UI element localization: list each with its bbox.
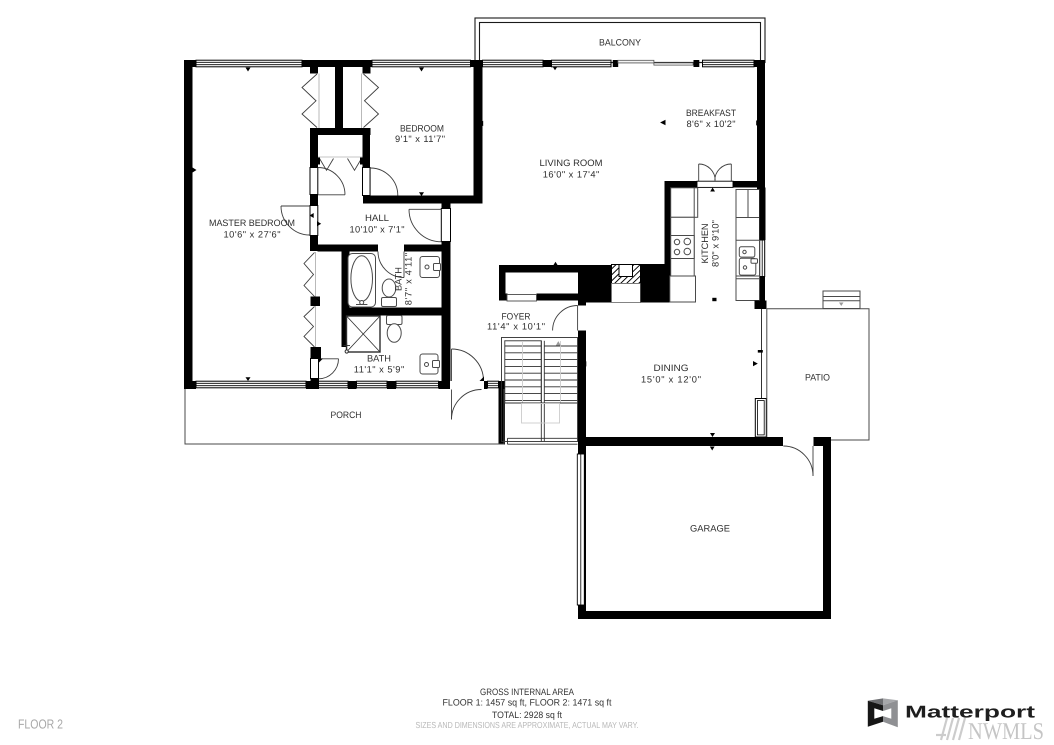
svg-text:BREAKFAST: BREAKFAST: [686, 108, 736, 118]
svg-text:8'0" x 9'10": 8'0" x 9'10": [711, 220, 721, 267]
svg-text:NWMLS: NWMLS: [968, 719, 1044, 745]
svg-text:9'1" x 11'7": 9'1" x 11'7": [395, 134, 445, 144]
svg-text:15'0" x 12'0": 15'0" x 12'0": [641, 375, 701, 385]
svg-text:BALCONY: BALCONY: [599, 38, 641, 48]
svg-text:MASTER BEDROOM: MASTER BEDROOM: [209, 218, 295, 228]
svg-text:TOTAL: 2928 sq ft: TOTAL: 2928 sq ft: [492, 710, 562, 720]
svg-text:FLOOR 1: 1457 sq ft, FLOOR 2:: FLOOR 1: 1457 sq ft, FLOOR 2: 1471 sq ft: [443, 698, 612, 708]
svg-text:BATH: BATH: [367, 354, 391, 364]
svg-text:PATIO: PATIO: [805, 373, 830, 383]
svg-text:GARAGE: GARAGE: [690, 524, 730, 534]
svg-text:SIZES AND DIMENSIONS ARE APPRO: SIZES AND DIMENSIONS ARE APPROXIMATE, AC…: [416, 720, 639, 730]
svg-text:FLOOR 2: FLOOR 2: [18, 717, 63, 732]
svg-text:8'6" x 10'2": 8'6" x 10'2": [687, 119, 736, 129]
svg-text:PORCH: PORCH: [331, 410, 362, 420]
svg-text:16'0" x 17'4": 16'0" x 17'4": [543, 170, 600, 180]
svg-text:10'6" x 27'6": 10'6" x 27'6": [224, 230, 281, 240]
svg-text:BEDROOM: BEDROOM: [400, 124, 444, 134]
svg-text:GROSS INTERNAL AREA: GROSS INTERNAL AREA: [480, 687, 575, 697]
svg-text:LIVING ROOM: LIVING ROOM: [540, 158, 603, 168]
svg-text:DINING: DINING: [654, 363, 689, 373]
svg-text:11'1" x 5'9": 11'1" x 5'9": [354, 365, 405, 375]
svg-text:HALL: HALL: [365, 213, 389, 223]
svg-text:KITCHEN: KITCHEN: [700, 224, 710, 264]
svg-text:BATH: BATH: [394, 267, 404, 291]
svg-text:10'10" x 7'1": 10'10" x 7'1": [350, 225, 405, 235]
svg-text:FOYER: FOYER: [502, 312, 531, 322]
svg-text:8'7" x 4'11": 8'7" x 4'11": [404, 253, 414, 306]
svg-text:11'4" x 10'1": 11'4" x 10'1": [487, 322, 545, 332]
